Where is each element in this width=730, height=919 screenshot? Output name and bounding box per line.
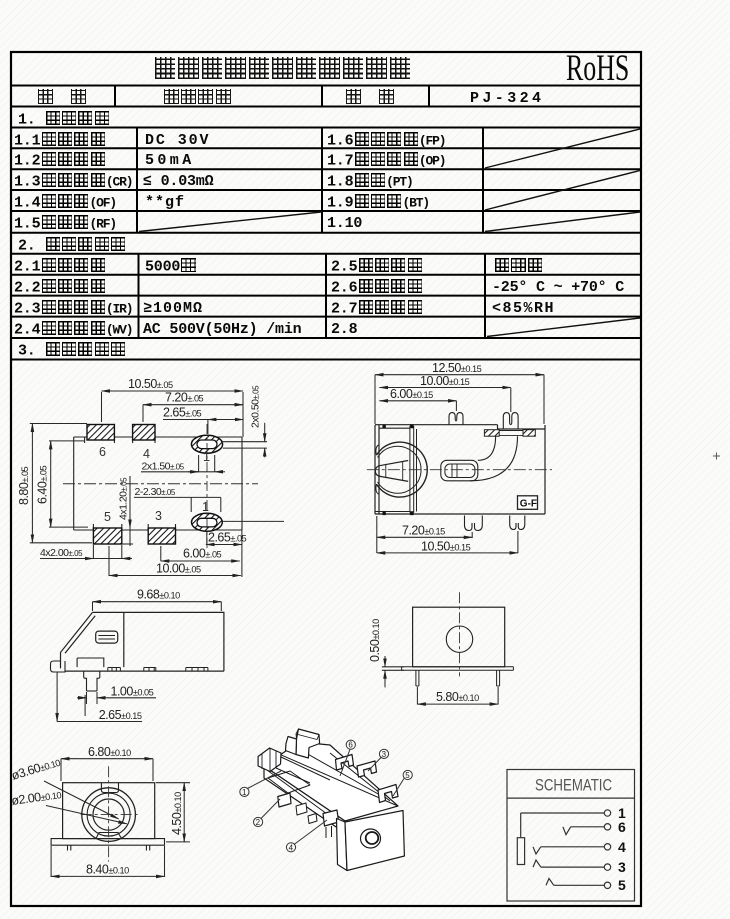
svg-text:6.00±.05: 6.00±.05 (183, 547, 222, 561)
svg-text:2-2.30±.05: 2-2.30±.05 (135, 486, 176, 498)
svg-text:2.65±0.15: 2.65±0.15 (99, 708, 142, 722)
svg-text:4: 4 (143, 447, 150, 461)
svg-text:0.50±0.10: 0.50±0.10 (368, 619, 382, 662)
svg-text:2: 2 (256, 818, 261, 827)
svg-text:6.80±0.10: 6.80±0.10 (88, 745, 131, 759)
svg-text:6: 6 (348, 741, 353, 750)
svg-text:10.00±0.15: 10.00±0.15 (420, 374, 470, 388)
svg-text:5: 5 (618, 877, 626, 893)
svg-text:1: 1 (202, 500, 209, 514)
svg-text:4x2.00±.05: 4x2.00±.05 (40, 547, 83, 559)
svg-text:2x0.50±.05: 2x0.50±.05 (250, 385, 262, 428)
svg-text:5: 5 (104, 510, 111, 524)
svg-text:1.00±0.05: 1.00±0.05 (111, 685, 154, 699)
svg-text:8.80±.05: 8.80±.05 (17, 466, 31, 505)
svg-text:7.20±.05: 7.20±.05 (165, 391, 204, 405)
svg-text:4.50±0.10: 4.50±0.10 (170, 792, 184, 835)
svg-text:4x1.20±.05: 4x1.20±.05 (118, 477, 130, 520)
svg-text:1: 1 (242, 788, 247, 797)
svg-text:2x1.50±.05: 2x1.50±.05 (142, 461, 185, 473)
svg-text:ø3.60±0.10: ø3.60±0.10 (10, 755, 62, 783)
svg-text:3: 3 (382, 750, 387, 759)
svg-text:10.00±.05: 10.00±.05 (156, 562, 201, 576)
svg-text:8.40±0.10: 8.40±0.10 (86, 863, 129, 877)
svg-text:4: 4 (289, 843, 294, 852)
svg-text:3: 3 (155, 509, 162, 523)
svg-text:9.68±0.10: 9.68±0.10 (137, 588, 180, 602)
svg-text:6: 6 (618, 819, 626, 835)
svg-text:10.50±0.15: 10.50±0.15 (421, 540, 471, 554)
svg-text:2.65±.05: 2.65±.05 (163, 406, 202, 420)
svg-text:SCHEMATIC: SCHEMATIC (535, 776, 612, 795)
svg-text:5.80±0.10: 5.80±0.10 (436, 690, 479, 704)
svg-text:4: 4 (618, 839, 626, 855)
svg-text:5: 5 (405, 771, 410, 780)
svg-text:G-F: G-F (520, 498, 537, 509)
svg-text:ø2.00±0.10: ø2.00±0.10 (10, 787, 62, 808)
svg-text:6: 6 (99, 445, 106, 459)
svg-text:1: 1 (203, 450, 210, 464)
svg-text:3: 3 (618, 859, 626, 875)
svg-text:2.65±.05: 2.65±.05 (208, 531, 247, 545)
svg-text:7.20±0.15: 7.20±0.15 (402, 524, 445, 538)
svg-text:10.50±.05: 10.50±.05 (128, 377, 173, 391)
svg-text:6.40±.05: 6.40±.05 (35, 465, 49, 504)
svg-text:6.00±0.15: 6.00±0.15 (390, 387, 433, 401)
